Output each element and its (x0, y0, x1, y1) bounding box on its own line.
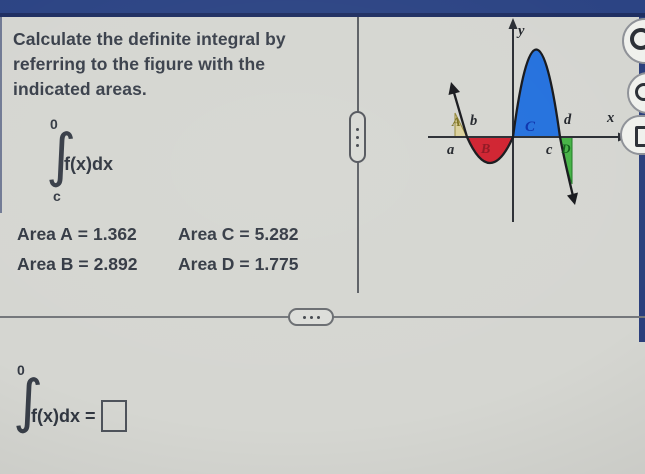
square-outline-icon (635, 126, 645, 147)
ring-icon (635, 83, 645, 101)
horizontal-dots-icon (310, 316, 313, 319)
x-axis-label: x (606, 110, 614, 126)
curve-arrow-up-icon (449, 82, 461, 95)
vertical-dots-icon (356, 128, 359, 131)
equals-sign: = (78, 224, 88, 244)
region-label-D: D (561, 142, 571, 156)
pane-splitter-handle[interactable] (349, 111, 366, 163)
y-axis-label: y (516, 23, 525, 39)
region-label-A: A (451, 114, 461, 129)
integral-expression: 0 ∫ f(x)dx c (46, 112, 176, 207)
vertical-dots-icon (356, 144, 359, 147)
problem-statement: Calculate the definite integral by refer… (13, 27, 313, 102)
area-number: 2.892 (94, 254, 138, 274)
integral-lower-limit: c (53, 188, 61, 204)
app-screen: Calculate the definite integral by refer… (0, 0, 645, 474)
area-values: Area A=1.362 Area C=5.282 Area B=2.892 A… (17, 224, 298, 275)
area-value-A: Area A=1.362 (17, 224, 178, 245)
horizontal-dots-icon (303, 316, 306, 319)
equals-sign: = (239, 224, 249, 244)
integrand: f(x)dx (64, 154, 113, 175)
expand-toggle-button[interactable] (288, 308, 334, 326)
area-label: Area C (178, 224, 234, 244)
region-label-C: C (525, 119, 536, 135)
area-number: 5.282 (255, 224, 299, 244)
vertical-dots-icon (356, 136, 359, 139)
horizontal-dots-icon (317, 316, 320, 319)
answer-expression: 0 ∫ f(x)dx = (13, 358, 143, 453)
y-axis-arrow-icon (509, 18, 518, 29)
tick-label-a: a (447, 142, 454, 158)
ring-icon (630, 28, 645, 50)
area-number: 1.362 (93, 224, 137, 244)
answer-equals-sign: = (85, 406, 96, 427)
equals-sign: = (239, 254, 249, 274)
problem-statement-line-3: indicated areas. (13, 77, 313, 102)
area-label: Area A (17, 224, 73, 244)
region-label-B: B (480, 142, 490, 157)
window-top-bar (0, 0, 645, 13)
area-value-B: Area B=2.892 (17, 254, 178, 275)
problem-statement-line-1: Calculate the definite integral by (13, 27, 313, 52)
area-label: Area B (17, 254, 73, 274)
figure-graph: y x a b c d A B C D (425, 15, 635, 225)
tick-label-b: b (470, 113, 477, 129)
area-value-C: Area C=5.282 (178, 224, 298, 245)
area-value-D: Area D=1.775 (178, 254, 298, 275)
answer-input-box[interactable] (101, 400, 127, 432)
answer-integrand: f(x)dx (31, 406, 80, 427)
window-right-edge (639, 17, 645, 342)
area-label: Area D (178, 254, 234, 274)
curve-arrow-down-icon (567, 193, 578, 206)
area-number: 1.775 (255, 254, 299, 274)
tick-label-c: c (546, 142, 553, 158)
equals-sign: = (78, 254, 88, 274)
tick-label-d: d (564, 112, 572, 128)
window-left-edge (0, 17, 2, 213)
problem-statement-line-2: referring to the figure with the (13, 52, 313, 77)
